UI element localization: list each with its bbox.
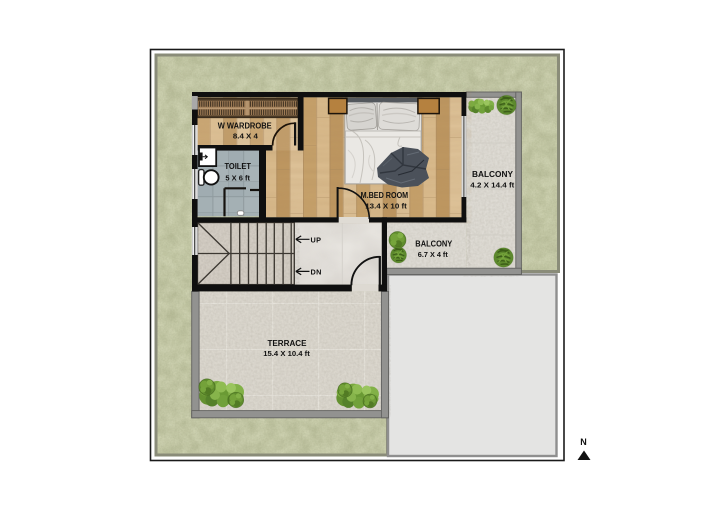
svg-text:TERRACE: TERRACE: [268, 339, 308, 348]
svg-text:DN: DN: [311, 267, 322, 276]
svg-text:4.2 X 14.4 ft: 4.2 X 14.4 ft: [470, 181, 515, 190]
svg-text:13.4 X 10 ft: 13.4 X 10 ft: [365, 202, 407, 211]
svg-text:M.BED ROOM: M.BED ROOM: [361, 191, 409, 200]
svg-text:6.7 X 4 ft: 6.7 X 4 ft: [418, 250, 449, 259]
svg-text:BALCONY: BALCONY: [472, 170, 514, 179]
svg-text:8.4 X 4: 8.4 X 4: [233, 132, 259, 141]
svg-text:BALCONY: BALCONY: [415, 240, 453, 249]
svg-text:W WARDROBE: W WARDROBE: [218, 122, 272, 131]
svg-text:TOILET: TOILET: [224, 162, 251, 171]
svg-text:N: N: [580, 437, 587, 447]
svg-text:5 X 6 ft: 5 X 6 ft: [225, 174, 250, 183]
svg-text:UP: UP: [311, 235, 322, 244]
svg-text:15.4 X 10.4 ft: 15.4 X 10.4 ft: [263, 349, 310, 358]
